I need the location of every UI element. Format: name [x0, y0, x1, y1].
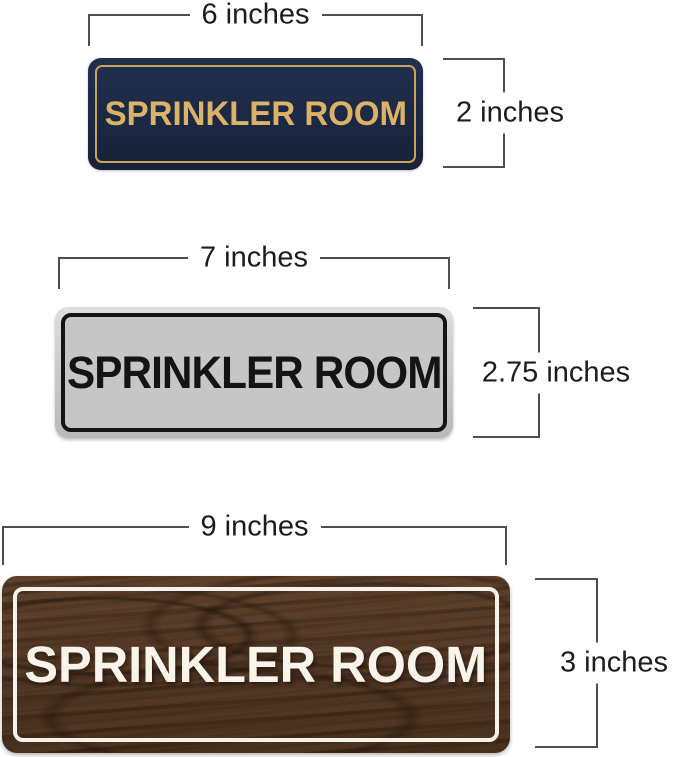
- dimension-end-tick: [2, 526, 4, 565]
- width-dimension-label: 6 inches: [189, 0, 321, 32]
- sign-label: SPRINKLER ROOM: [104, 97, 406, 131]
- dimension-end-tick: [473, 436, 540, 438]
- height-dimension-label: 2 inches: [450, 93, 570, 134]
- height-dimension-silver: 2.75 inches: [473, 307, 540, 438]
- dimension-end-tick: [535, 746, 598, 748]
- sign-navy-6x2: SPRINKLER ROOM: [88, 58, 423, 170]
- sign-silver-7x275: SPRINKLER ROOM: [55, 307, 453, 438]
- dimension-end-tick: [421, 14, 423, 46]
- dimension-end-tick: [58, 257, 60, 289]
- width-dimension-label: 9 inches: [188, 511, 320, 544]
- dimension-end-tick: [535, 578, 598, 580]
- height-dimension-label: 3 inches: [554, 643, 674, 684]
- sign-label: SPRINKLER ROOM: [25, 639, 488, 690]
- dimension-end-tick: [448, 257, 450, 289]
- height-dimension-wood: 3 inches: [535, 578, 598, 748]
- sign-wood-9x3: SPRINKLER ROOM: [2, 576, 510, 753]
- dimension-end-tick: [443, 166, 505, 168]
- sign-label: SPRINKLER ROOM: [67, 350, 442, 395]
- width-dimension-label: 7 inches: [188, 242, 320, 275]
- product-dimension-diagram: 6 inches SPRINKLER ROOM 2 inches 7 inche…: [0, 0, 679, 757]
- dimension-end-tick: [505, 526, 507, 565]
- dimension-end-tick: [88, 14, 90, 46]
- height-dimension-navy: 2 inches: [443, 58, 505, 168]
- dimension-end-tick: [473, 307, 540, 309]
- height-dimension-label: 2.75 inches: [476, 352, 636, 393]
- dimension-end-tick: [443, 58, 505, 60]
